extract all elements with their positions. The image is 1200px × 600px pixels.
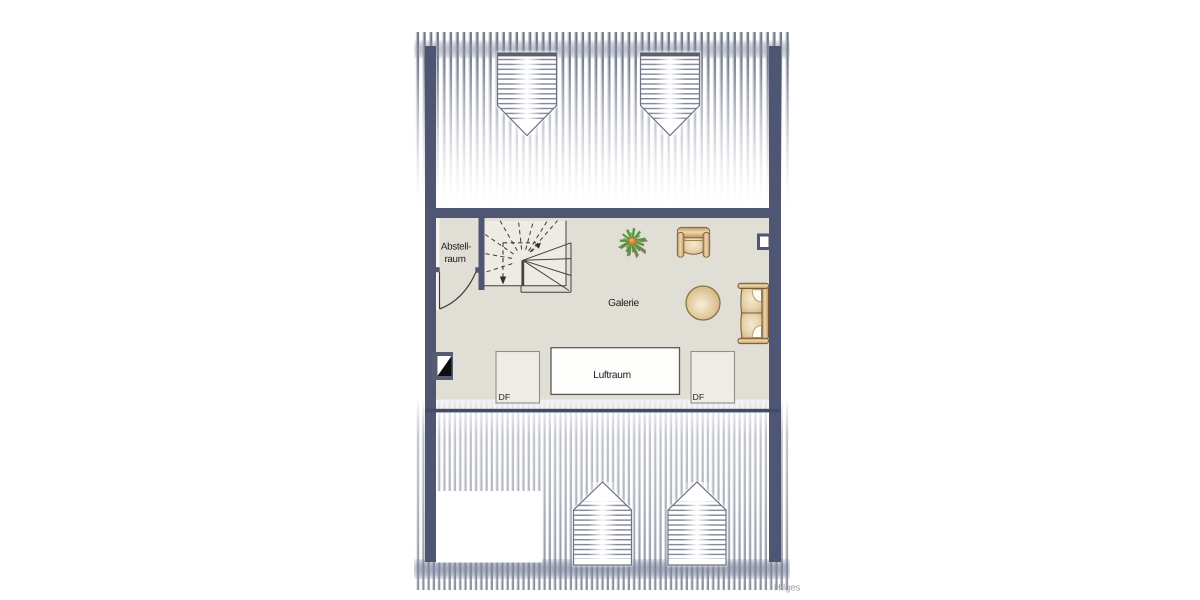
svg-text:Abstell-: Abstell- [441,242,471,253]
svg-text:DF: DF [693,392,705,402]
svg-text:DF: DF [499,392,511,402]
svg-text:Hilges: Hilges [774,583,801,594]
svg-text:Galerie: Galerie [608,298,639,309]
svg-text:raum: raum [444,254,465,265]
svg-text:Luftraum: Luftraum [593,370,630,381]
